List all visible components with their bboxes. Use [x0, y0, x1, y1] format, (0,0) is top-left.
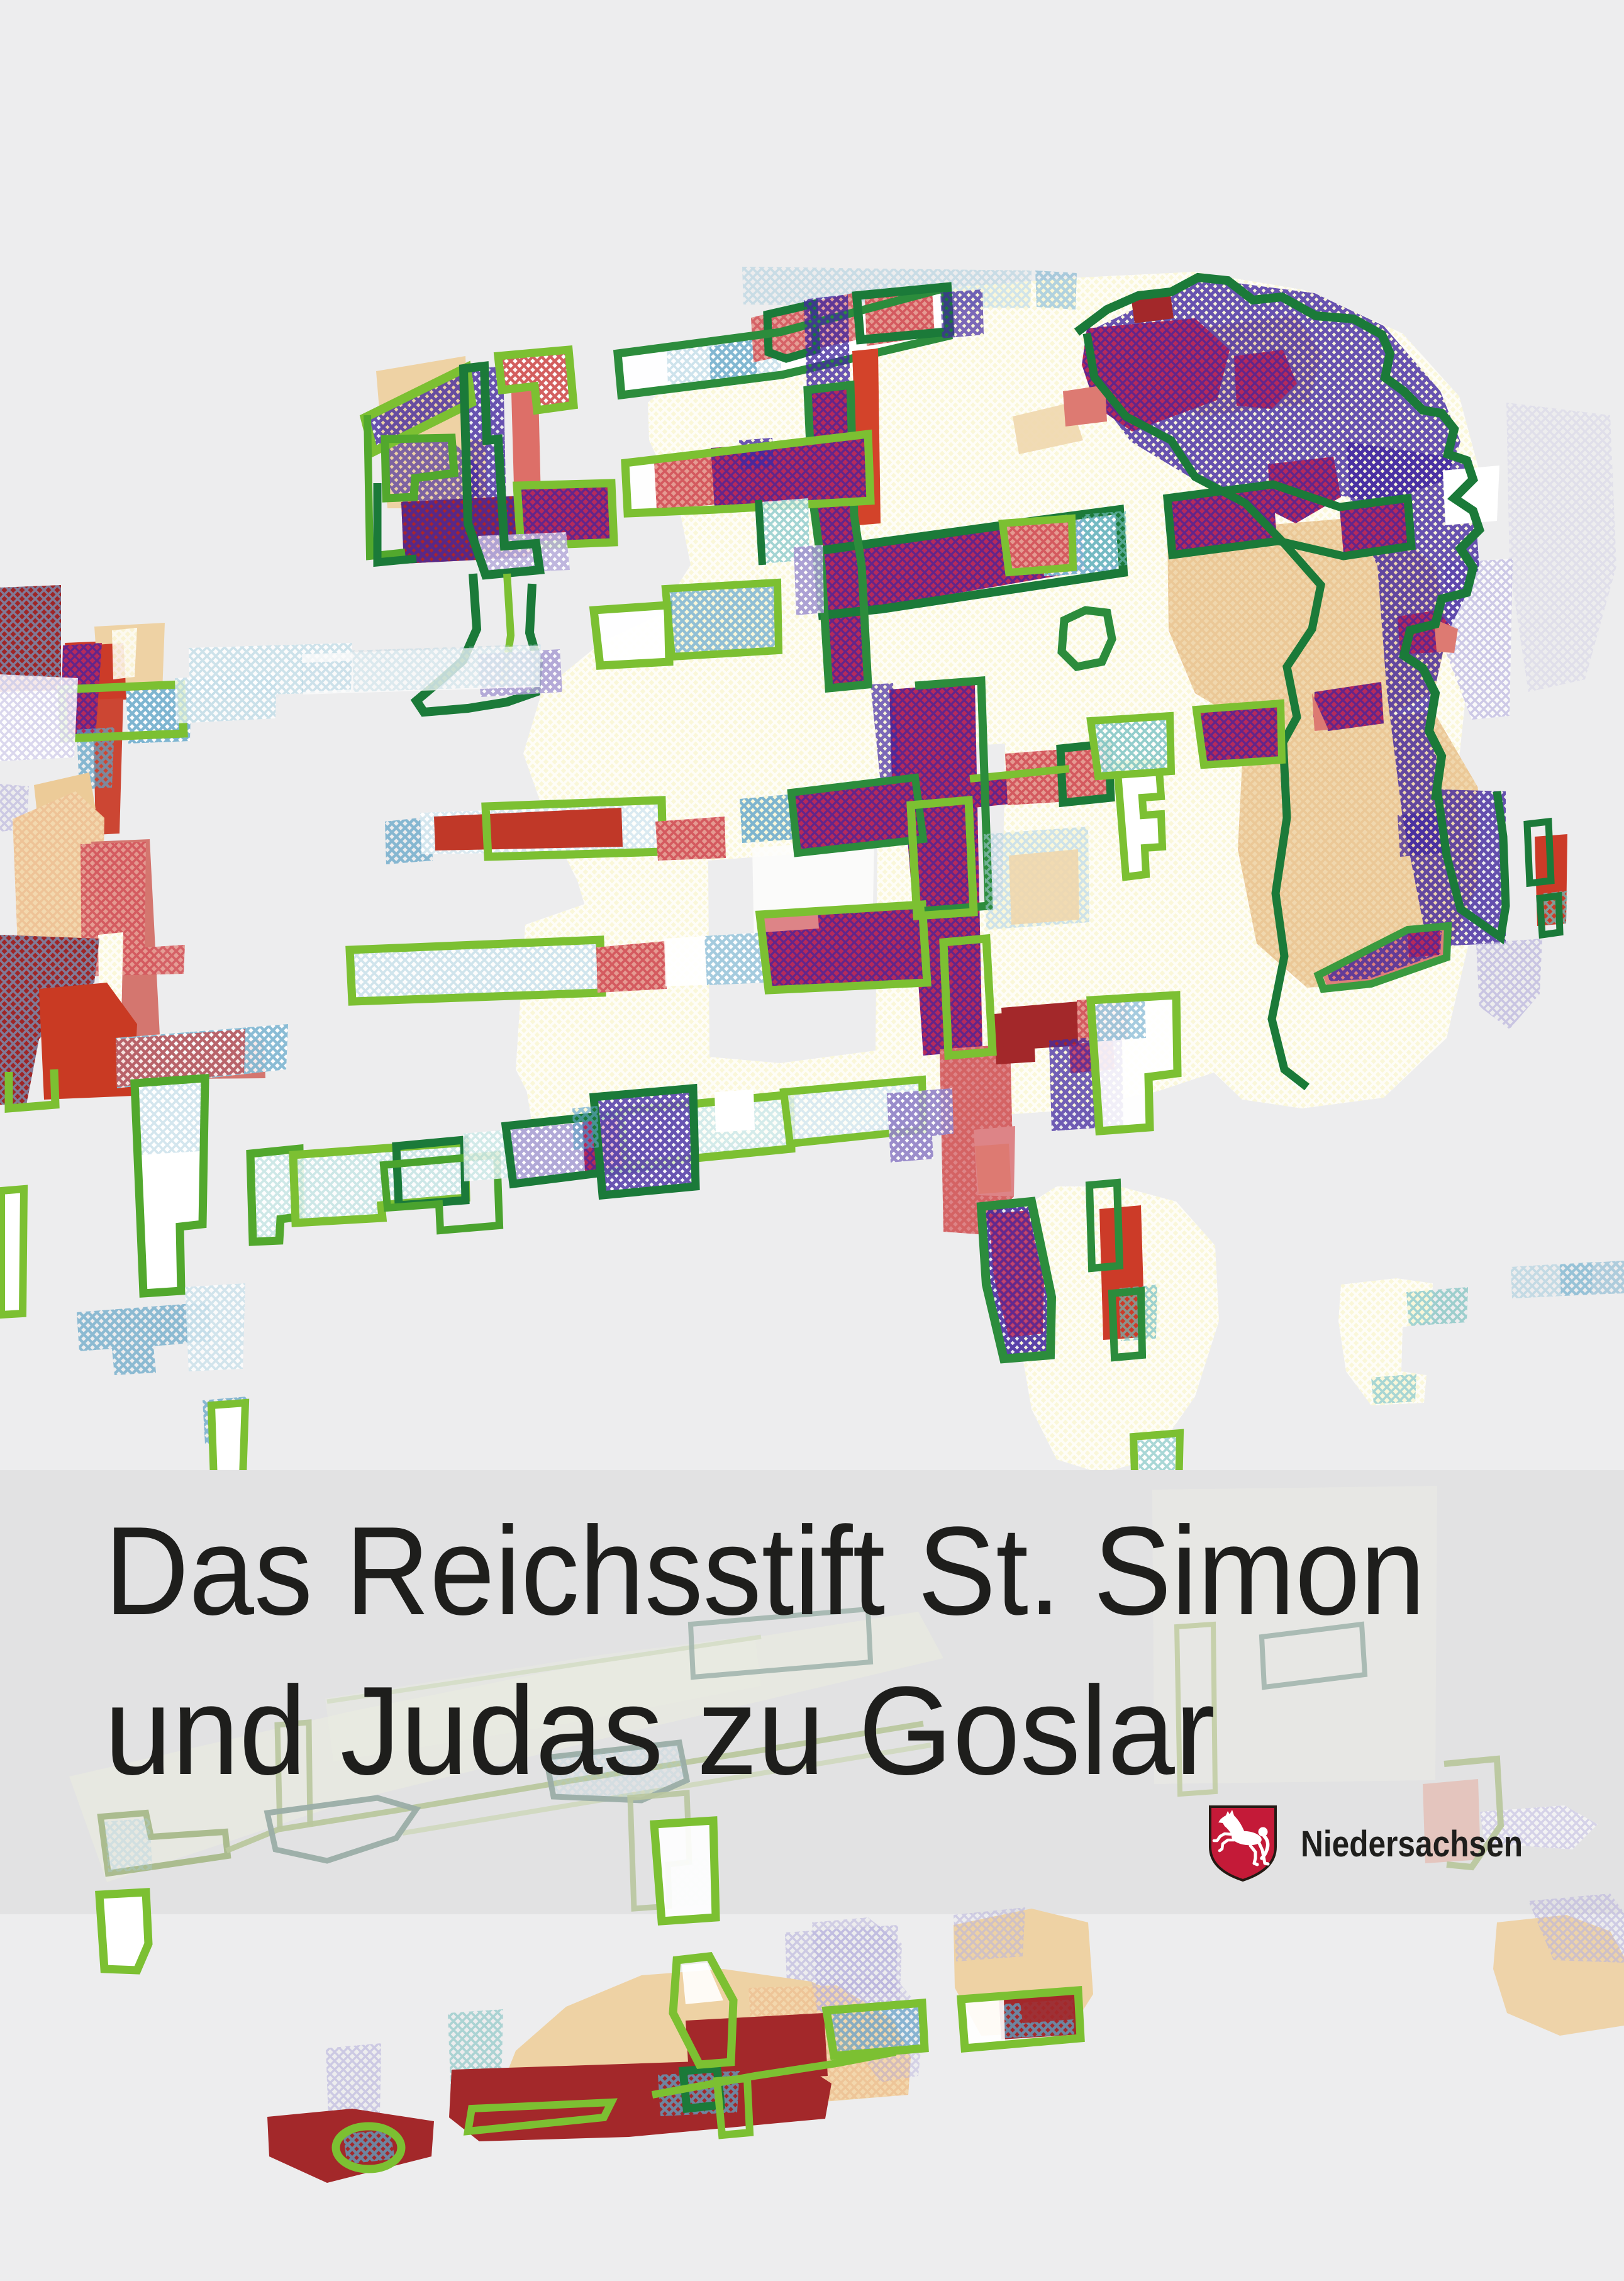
- svg-text:und Judas zu Goslar: und Judas zu Goslar: [104, 1661, 1215, 1801]
- svg-text:Das Reichsstift St. Simon: Das Reichsstift St. Simon: [104, 1501, 1425, 1641]
- svg-text:Niedersachsen: Niedersachsen: [1301, 1824, 1523, 1865]
